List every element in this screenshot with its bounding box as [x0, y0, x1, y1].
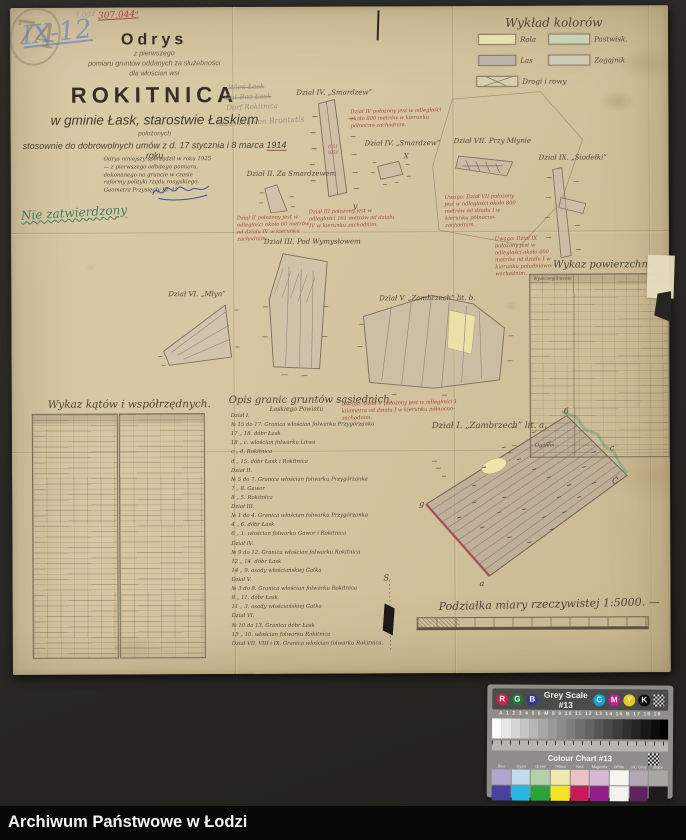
r-circle-icon: R	[496, 693, 508, 705]
color-swatch	[492, 785, 511, 800]
yellow-patch	[479, 455, 508, 477]
archive-watermark-bar: Archiwum Państwowe w Łodzi	[0, 806, 686, 840]
grey-step	[650, 719, 659, 739]
y-circle-icon: Y	[623, 694, 635, 706]
list-item: Dział VII, VIII i IX. Granica włościan f…	[232, 639, 404, 649]
red-boundary-edge	[426, 504, 489, 576]
color-swatch	[531, 770, 550, 785]
agreement-pre: stosownie do dobrowolnych umów z d. 17 s…	[23, 140, 267, 151]
grey-step	[501, 718, 510, 738]
grey-step	[511, 719, 520, 739]
red-note-pod-wymyslowem: Dział III położony jest w odległości 161…	[309, 208, 399, 231]
color-swatch	[590, 770, 609, 785]
color-swatch	[629, 786, 648, 801]
legend-label-zagajnik: Zagajnik	[594, 56, 625, 64]
legend-swatch-pastwisko	[548, 33, 590, 44]
reference-number: 307.044ᵃ	[98, 9, 139, 21]
title-subline-3: dla włościan wsi	[20, 69, 288, 80]
grey-step	[566, 719, 575, 739]
areas-table: Wyszczególnienie Ogółem	[529, 273, 670, 458]
parcel-label-smardzew-top: Dział IV. „Smardzew”	[296, 88, 372, 96]
grey-step	[529, 719, 538, 739]
color-swatch	[570, 786, 589, 801]
strip-number-2: 1052	[328, 150, 339, 155]
map-letter-x: X	[403, 152, 410, 160]
grey-step	[612, 719, 621, 739]
ruler-strip	[492, 740, 668, 751]
grey-step	[640, 719, 649, 739]
grey-step	[492, 718, 501, 738]
calibration-card: R G B Grey Scale #13 C M Y K A 1 2 3 4 5…	[487, 684, 674, 798]
map-letter-a: a	[479, 579, 484, 588]
parcel-label-zambrzech-b: Dział V. „Zambrzech” lit. b.	[379, 294, 475, 302]
borders-description-list: Dział I.№ 15 do 17. Granica włościan fol…	[231, 411, 404, 662]
color-swatch	[610, 770, 629, 785]
grey-step	[622, 719, 631, 739]
legend-title: Wykład kolorów	[505, 15, 603, 29]
grey-scale-ramp	[492, 718, 668, 739]
grey-step	[594, 719, 603, 739]
grey-step	[557, 719, 566, 739]
legend-swatch-drogi	[476, 76, 518, 87]
archive-name: Archiwum Państwowe w Łodzi	[8, 813, 247, 832]
grey-scale-title: Grey Scale #13	[541, 689, 590, 709]
color-swatch	[492, 769, 511, 784]
map-letter-c2: Ć	[612, 476, 618, 485]
k-circle-icon: K	[638, 694, 650, 706]
grey-step	[538, 719, 547, 739]
color-swatch	[511, 786, 530, 801]
scale-label: Podziałka miary rzeczywistej 1:5000. —	[438, 595, 659, 613]
angles-table-block-1	[32, 414, 119, 659]
parcel-label-siodelki: Dział IX. „Siodełki”	[539, 153, 607, 161]
archive-stamp: Łódź	[76, 9, 96, 19]
color-swatch	[649, 770, 668, 785]
map-sheet: IX-12 Łódź 307.044ᵃ Odrys z pierwszego p…	[10, 5, 671, 675]
map-letter-g: g	[419, 499, 424, 508]
color-swatch	[570, 770, 589, 785]
legend-swatch-las	[478, 55, 516, 66]
borders-title: Opis granic gruntów sąsiednich.	[229, 394, 393, 406]
parcel-label-mlyn: Dział VI. „Młyn”	[168, 290, 226, 298]
color-swatch	[610, 786, 629, 801]
pencil-note-1: Wieś Łask	[228, 82, 264, 91]
barcode-chip-icon	[653, 694, 664, 706]
legend-label-las: Las	[520, 57, 532, 65]
b-circle-icon: B	[526, 693, 538, 705]
m-circle-icon: M	[608, 694, 620, 706]
areas-table-title: Wykaz powierzchni.	[553, 259, 654, 270]
parcel-smardzew-cluster: X	[371, 152, 411, 184]
red-note-przy-mlynie: Uwaga: Dział VII położony jest w odległo…	[445, 193, 524, 230]
legend-label-pastwisko: Pastwisk.	[594, 35, 627, 43]
angles-table-title: Wykaz kątów i współrzędnych.	[48, 398, 211, 411]
color-swatch	[649, 786, 668, 801]
grey-step	[585, 719, 594, 739]
color-swatch	[551, 786, 570, 801]
color-swatch	[551, 770, 570, 785]
color-swatch	[590, 786, 609, 801]
parcel-za-smardzewem	[259, 185, 295, 213]
areas-table-total: Ogółem	[535, 443, 555, 449]
red-note-siodelki: Uwaga: Dział IX położony jest w odległoś…	[495, 235, 558, 278]
fold-line-horizontal	[11, 230, 669, 234]
grey-step	[631, 719, 640, 739]
strip-number-1: 1051	[328, 144, 338, 149]
colour-swatches-pastel	[492, 769, 668, 785]
grey-step	[575, 719, 584, 739]
grey-step	[659, 720, 668, 740]
colour-swatches-saturated	[492, 785, 668, 801]
parcel-pod-wymyslowem	[262, 254, 329, 376]
color-swatch	[531, 786, 550, 801]
agreement-year: 1914	[266, 140, 286, 151]
legend-label-rola: Rola	[520, 36, 536, 44]
legend-label-drogi: Drogi i rowy	[522, 78, 566, 86]
positioned-word: położonych	[21, 130, 289, 138]
parcel-label-za-smardzewem: Dział II. Za Smardzewem	[247, 170, 337, 178]
approval-note: Nie zatwierdzony	[21, 203, 128, 223]
grey-scale-index-row: A 1 2 3 4 5 6 M 8 9 10 11 12 13 14 15 B …	[492, 710, 668, 718]
parcel-label-smardzew-right: Dział IV. „Smardzew”	[365, 139, 441, 147]
red-note-za-smardzewem: Dział II położony jest w odległości okoł…	[237, 214, 314, 244]
g-circle-icon: G	[511, 693, 523, 705]
c-circle-icon: C	[593, 694, 605, 706]
grey-step	[603, 719, 612, 739]
areas-table-header: Wyszczególnienie	[533, 277, 572, 282]
grey-scale-header: R G B Grey Scale #13 C M Y K	[492, 688, 668, 710]
legend-swatch-zagajnik	[548, 54, 590, 65]
parcel-zambrzech-b	[357, 295, 513, 396]
parcel-mlyn	[158, 305, 239, 365]
color-swatch	[629, 770, 648, 785]
grey-step	[520, 719, 529, 739]
graphic-scale-bar	[417, 616, 649, 630]
color-swatch	[511, 770, 530, 785]
fold-line-vertical	[452, 6, 456, 673]
archive-scan-stage: IX-12 Łódź 307.044ᵃ Odrys z pierwszego p…	[0, 0, 686, 840]
red-note-smardzew: Dział IV położony jest w odległości okoł…	[350, 107, 446, 130]
grey-step	[548, 719, 557, 739]
signature-scribble	[151, 181, 213, 201]
ink-mark	[377, 10, 380, 40]
legend-swatch-rola	[478, 34, 516, 45]
angles-table-block-2	[119, 413, 206, 658]
parcel-label-przy-mlynie: Dział VII. Przy Młynie	[454, 137, 531, 145]
